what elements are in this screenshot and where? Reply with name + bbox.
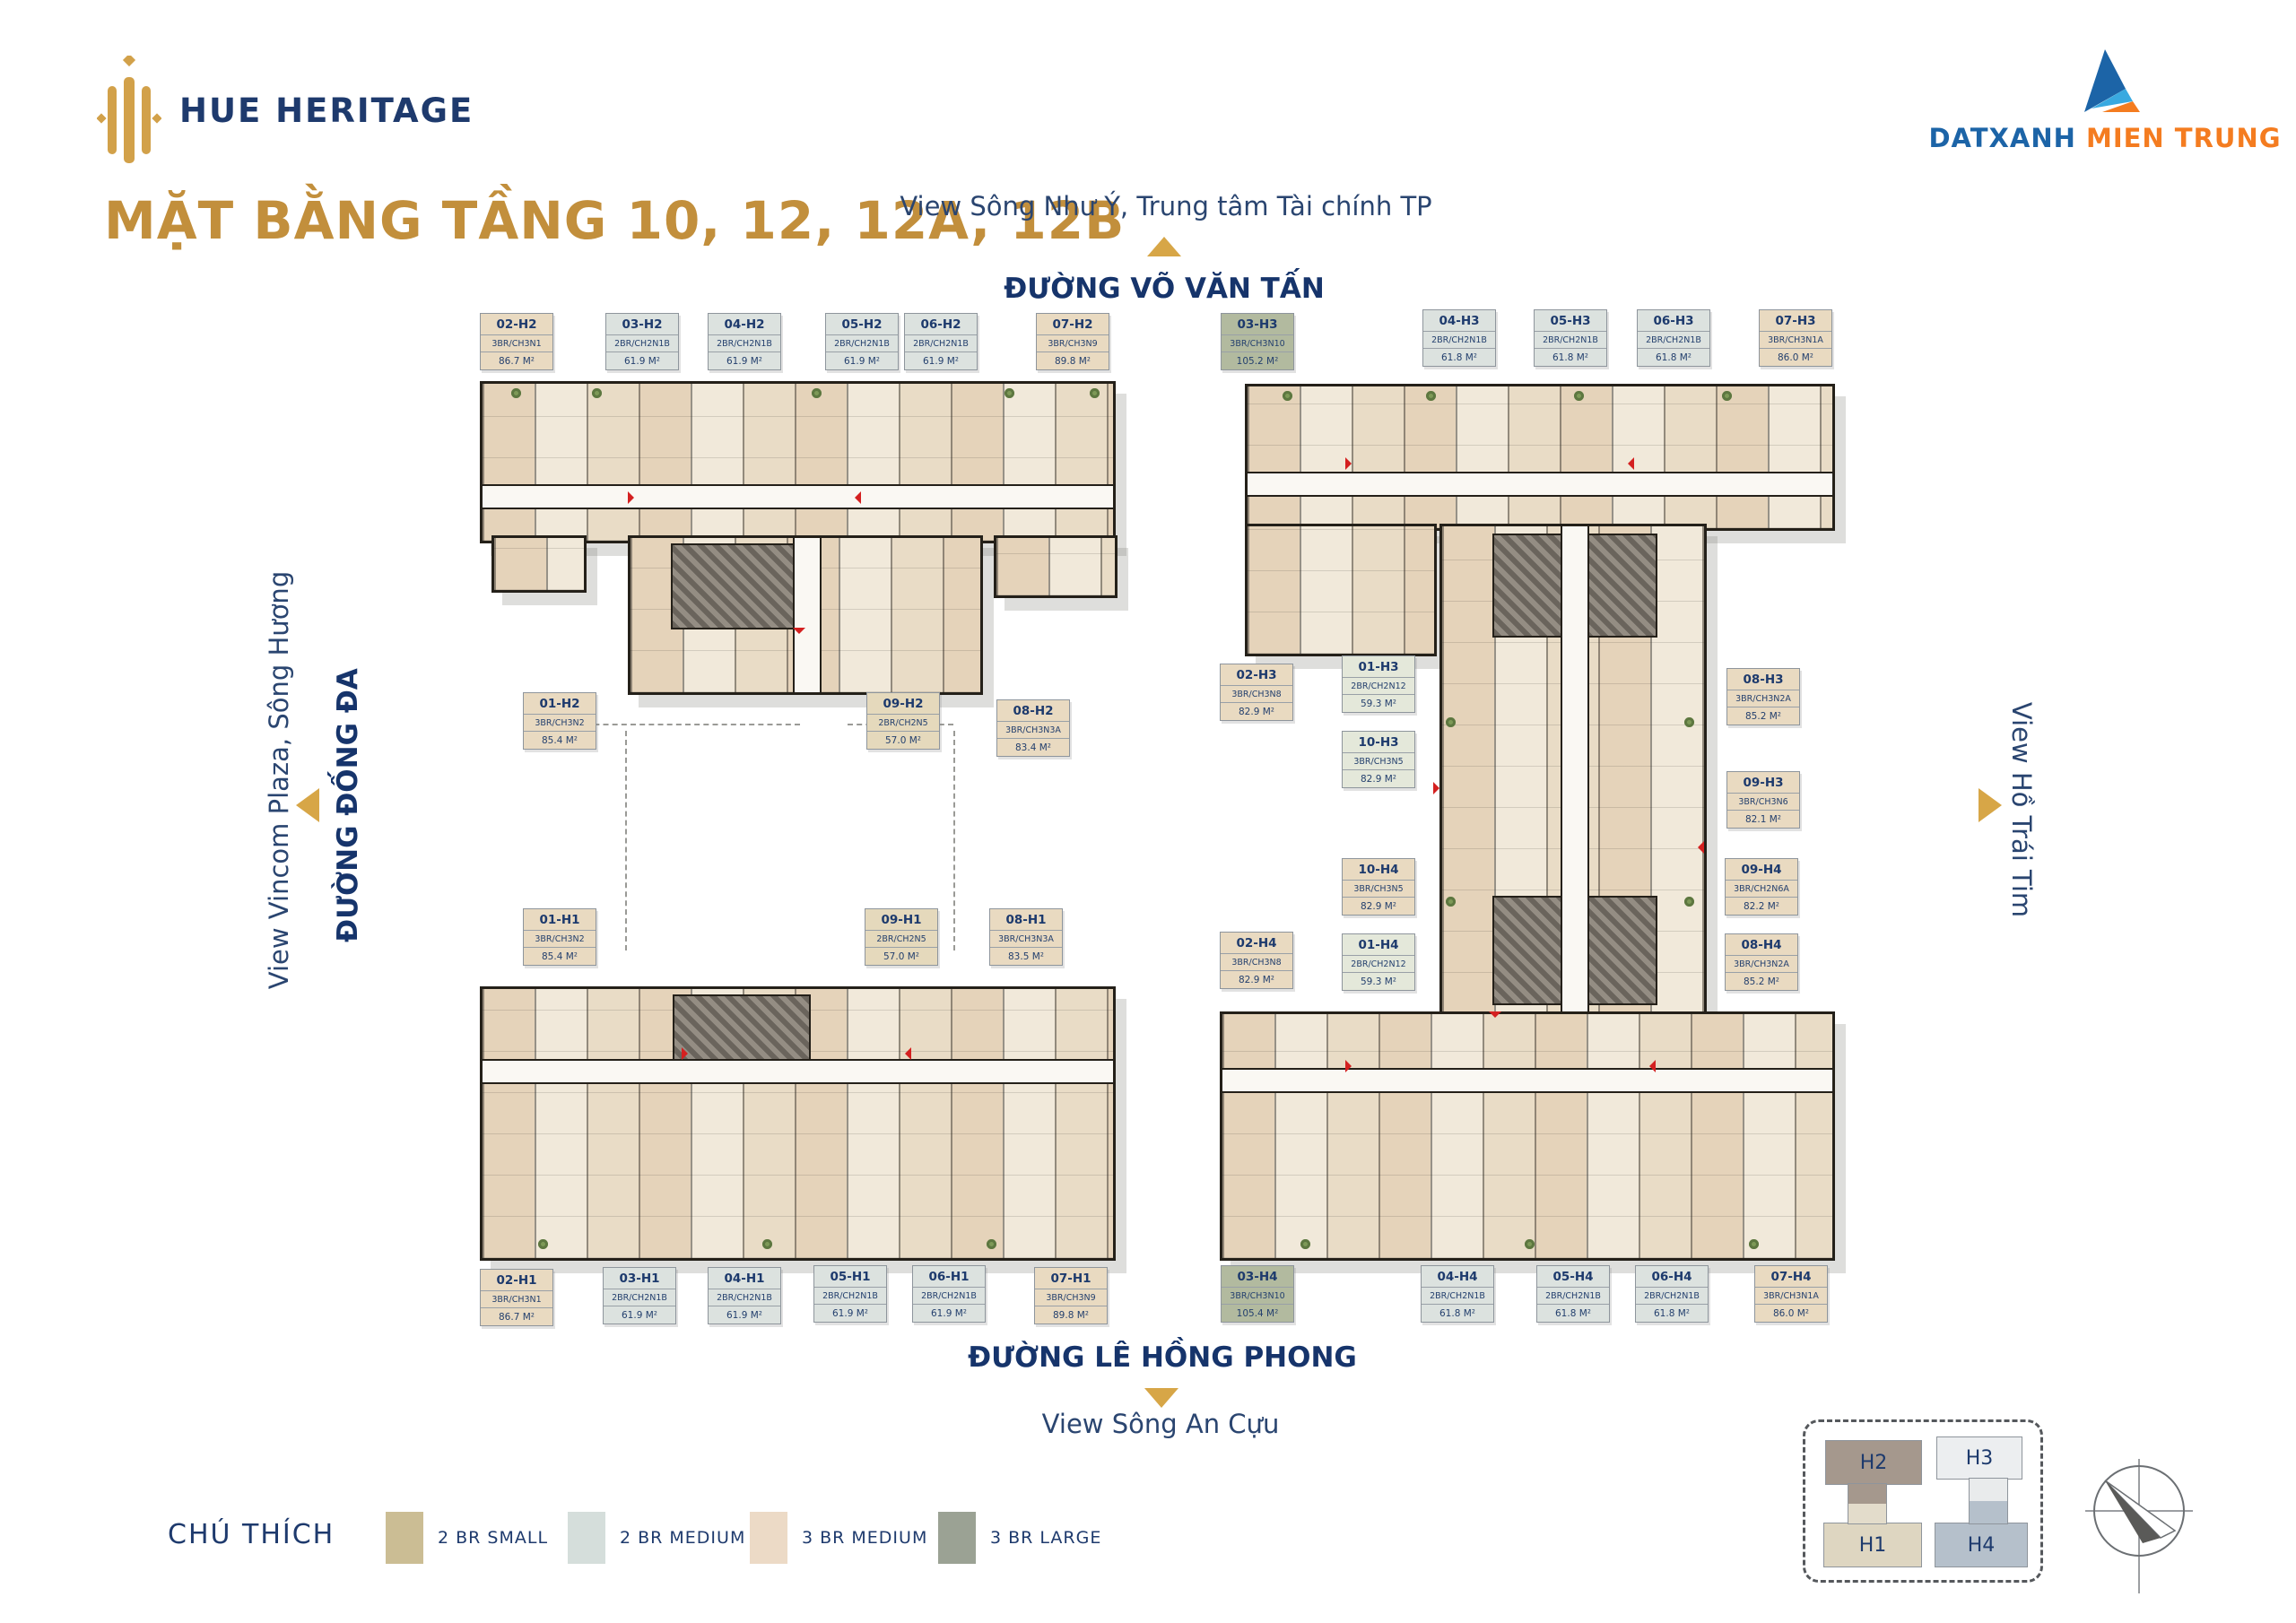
unit-type: 3BR/CH3N5 [1343,753,1414,770]
unit-type: 2BR/CH2N1B [913,1288,985,1305]
unit-area: 61.9 M² [905,352,977,369]
dashed-outline [625,731,627,950]
unit-area: 85.2 M² [1727,707,1799,725]
legend-swatch [938,1512,976,1564]
unit-code: 07-H1 [1035,1268,1107,1289]
stair-core [1492,896,1657,1005]
plant-icon [1283,391,1292,401]
legend-label: 3 BR MEDIUM [802,1528,927,1548]
unit-area: 83.4 M² [997,739,1069,756]
unit-label-06-H1: 06-H1 2BR/CH2N1B 61.9 M² [912,1265,986,1323]
unit-area: 57.0 M² [867,732,939,749]
arrow-left-icon [296,788,319,822]
stair-core [671,543,809,629]
unit-label-02-H4: 02-H4 3BR/CH3N8 82.9 M² [1220,932,1293,989]
unit-area: 61.9 M² [606,352,678,369]
plant-icon [762,1239,772,1249]
plant-icon [1446,717,1456,727]
legend-swatch [750,1512,787,1564]
legend-label: 2 BR SMALL [438,1528,548,1548]
plant-icon [1684,717,1694,727]
unit-type: 3BR/CH3N2A [1727,690,1799,707]
unit-type: 2BR/CH2N12 [1343,956,1414,973]
view-label-bottom: View Sông An Cựu [1042,1409,1280,1439]
dashed-outline [953,731,955,950]
building-h3-left-block [1245,524,1437,656]
unit-type: 3BR/CH3N1 [481,1291,552,1308]
unit-code: 05-H1 [814,1266,886,1288]
unit-area: 61.8 M² [1423,349,1495,366]
plant-icon [1004,388,1014,398]
unit-label-01-H3: 01-H3 2BR/CH2N12 59.3 M² [1342,655,1415,713]
unit-code: 08-H2 [997,700,1069,722]
unit-code: 02-H3 [1221,664,1292,686]
unit-code: 08-H3 [1727,669,1799,690]
unit-type: 3BR/CH3N3A [997,722,1069,739]
unit-type: 2BR/CH2N5 [867,715,939,732]
unit-label-10-H3: 10-H3 3BR/CH3N5 82.9 M² [1342,731,1415,788]
unit-type: 2BR/CH2N12 [1343,678,1414,695]
unit-area: 82.2 M² [1726,898,1797,915]
unit-type: 3BR/CH2N6A [1726,881,1797,898]
compass-icon [2085,1459,2193,1593]
unit-label-08-H4: 08-H4 3BR/CH3N2A 85.2 M² [1725,933,1798,991]
floorplan-poster: HUE HERITAGE MẶT BẰNG TẦNG 10, 12, 12A, … [0,0,2296,1623]
unit-code: 01-H1 [524,909,596,931]
keyplan-connector [1848,1483,1887,1524]
unit-type: 2BR/CH2N1B [709,335,780,352]
unit-label-06-H2: 06-H2 2BR/CH2N1B 61.9 M² [904,313,978,370]
unit-area: 57.0 M² [865,948,937,965]
legend-label: 2 BR MEDIUM [620,1528,745,1548]
street-label-bottom: ĐƯỜNG LÊ HỒNG PHONG [968,1341,1357,1374]
unit-area: 89.8 M² [1037,352,1109,369]
unit-label-02-H1: 02-H1 3BR/CH3N1 86.7 M² [480,1269,553,1326]
building-h2-main-wing [480,381,1116,543]
entrance-marker [1489,1011,1501,1024]
unit-label-08-H2: 08-H2 3BR/CH3N3A 83.4 M² [996,699,1070,757]
unit-type: 3BR/CH3N9 [1037,335,1109,352]
unit-type: 3BR/CH3N6 [1727,794,1799,811]
plant-icon [1722,391,1732,401]
unit-code: 09-H2 [867,693,939,715]
unit-code: 06-H3 [1638,310,1709,332]
unit-area: 61.9 M² [826,352,898,369]
unit-code: 09-H3 [1727,772,1799,794]
unit-type: 3BR/CH3N2 [524,931,596,948]
entrance-marker [1622,457,1634,470]
unit-code: 07-H4 [1755,1266,1827,1288]
developer-name-part1: DATXANH [1928,123,2075,153]
plant-icon [1684,897,1694,907]
unit-type: 3BR/CH3N8 [1221,686,1292,703]
unit-type: 2BR/CH2N5 [865,931,937,948]
unit-code: 03-H1 [604,1268,675,1289]
unit-type: 2BR/CH2N1B [1636,1288,1708,1305]
unit-code: 08-H1 [990,909,1062,931]
developer-logo: DATXANH MIEN TRUNG [1917,49,2293,153]
unit-label-07-H1: 07-H1 3BR/CH3N9 89.8 M² [1034,1267,1108,1324]
building-h2-core-wing [628,535,983,695]
plant-icon [1426,391,1436,401]
unit-type: 2BR/CH2N1B [1535,332,1606,349]
unit-code: 03-H4 [1222,1266,1293,1288]
plant-icon [1090,388,1100,398]
unit-label-06-H4: 06-H4 2BR/CH2N1B 61.8 M² [1635,1265,1709,1323]
entrance-marker [1643,1060,1656,1072]
unit-type: 3BR/CH3N9 [1035,1289,1107,1306]
unit-label-05-H1: 05-H1 2BR/CH2N1B 61.9 M² [813,1265,887,1323]
unit-label-04-H1: 04-H1 2BR/CH2N1B 61.9 M² [708,1267,781,1324]
unit-code: 06-H2 [905,314,977,335]
unit-label-03-H2: 03-H2 2BR/CH2N1B 61.9 M² [605,313,679,370]
unit-area: 61.8 M² [1537,1305,1609,1322]
unit-label-01-H1: 01-H1 3BR/CH3N2 85.4 M² [523,908,596,966]
unit-area: 83.5 M² [990,948,1062,965]
unit-area: 86.0 M² [1760,349,1831,366]
unit-label-03-H1: 03-H1 2BR/CH2N1B 61.9 M² [603,1267,676,1324]
brand-header: HUE HERITAGE [97,56,474,165]
unit-type: 3BR/CH3N10 [1222,335,1293,352]
plant-icon [1300,1239,1310,1249]
unit-area: 61.8 M² [1638,349,1709,366]
legend-title: CHÚ THÍCH [168,1519,335,1550]
unit-area: 61.8 M² [1636,1305,1708,1322]
keyplan-block-h1: H1 [1823,1523,1922,1567]
unit-label-04-H4: 04-H4 2BR/CH2N1B 61.8 M² [1421,1265,1494,1323]
unit-type: 3BR/CH3N1A [1760,332,1831,349]
unit-code: 01-H2 [524,693,596,715]
entrance-marker [899,1047,911,1060]
unit-code: 07-H3 [1760,310,1831,332]
unit-type: 2BR/CH2N1B [1537,1288,1609,1305]
unit-label-05-H2: 05-H2 2BR/CH2N1B 61.9 M² [825,313,899,370]
unit-type: 3BR/CH3N1 [481,335,552,352]
plant-icon [1446,897,1456,907]
unit-type: 2BR/CH2N1B [826,335,898,352]
unit-label-05-H3: 05-H3 2BR/CH2N1B 61.8 M² [1534,309,1607,367]
unit-area: 82.1 M² [1727,811,1799,828]
unit-label-09-H1: 09-H1 2BR/CH2N5 57.0 M² [865,908,938,966]
keyplan-block-h3: H3 [1936,1436,2022,1480]
unit-code: 01-H4 [1343,934,1414,956]
unit-area: 59.3 M² [1343,695,1414,712]
legend-swatch [568,1512,605,1564]
building-h3-main-wing [1245,384,1835,531]
unit-label-01-H2: 01-H2 3BR/CH3N2 85.4 M² [523,692,596,750]
unit-type: 3BR/CH3N5 [1343,881,1414,898]
legend-item-3br-large: 3 BR LARGE [938,1512,1101,1564]
unit-type: 2BR/CH2N1B [814,1288,886,1305]
unit-area: 85.4 M² [524,732,596,749]
entrance-marker [793,628,805,640]
unit-code: 09-H1 [865,909,937,931]
unit-area: 82.9 M² [1343,770,1414,787]
unit-code: 05-H4 [1537,1266,1609,1288]
unit-area: 89.8 M² [1035,1306,1107,1324]
developer-name: DATXANH MIEN TRUNG [1917,123,2293,153]
unit-label-03-H3: 03-H3 3BR/CH3N10 105.2 M² [1221,313,1294,370]
unit-area: 85.4 M² [524,948,596,965]
plant-icon [1749,1239,1759,1249]
unit-code: 05-H2 [826,314,898,335]
unit-area: 86.0 M² [1755,1305,1827,1322]
unit-area: 61.9 M² [814,1305,886,1322]
plant-icon [987,1239,996,1249]
entrance-marker [848,491,861,504]
unit-label-07-H4: 07-H4 3BR/CH3N1A 86.0 M² [1754,1265,1828,1323]
unit-code: 06-H4 [1636,1266,1708,1288]
unit-code: 08-H4 [1726,934,1797,956]
unit-label-04-H3: 04-H3 2BR/CH2N1B 61.8 M² [1422,309,1496,367]
building-h4-main-wing [1220,1011,1835,1261]
arrow-down-icon [1144,1388,1178,1408]
dashed-outline [576,724,800,725]
unit-area: 86.7 M² [481,352,552,369]
unit-label-01-H4: 01-H4 2BR/CH2N12 59.3 M² [1342,933,1415,991]
unit-type: 3BR/CH3N2 [524,715,596,732]
legend-item-2br-small: 2 BR SMALL [386,1512,548,1564]
unit-type: 2BR/CH2N1B [604,1289,675,1306]
entrance-marker [628,491,640,504]
unit-code: 04-H4 [1422,1266,1493,1288]
unit-code: 02-H2 [481,314,552,335]
unit-label-02-H3: 02-H3 3BR/CH3N8 82.9 M² [1220,664,1293,721]
unit-area: 61.9 M² [604,1306,675,1324]
unit-label-08-H3: 08-H3 3BR/CH3N2A 85.2 M² [1726,668,1800,725]
unit-area: 61.9 M² [709,352,780,369]
building-h2-right-stub [994,535,1118,598]
plant-icon [812,388,822,398]
legend-label: 3 BR LARGE [990,1528,1101,1548]
entrance-marker [1433,782,1446,794]
unit-type: 2BR/CH2N1B [905,335,977,352]
unit-type: 2BR/CH2N1B [606,335,678,352]
view-label-left: View Vincom Plaza, Sông Hương [264,571,294,989]
street-label-left: ĐƯỜNG ĐỐNG ĐA [332,668,364,942]
unit-label-08-H1: 08-H1 3BR/CH3N3A 83.5 M² [989,908,1063,966]
unit-code: 01-H3 [1343,656,1414,678]
building-h1-main-wing [480,986,1116,1261]
unit-label-04-H2: 04-H2 2BR/CH2N1B 61.9 M² [708,313,781,370]
unit-label-03-H4: 03-H4 3BR/CH3N10 105.4 M² [1221,1265,1294,1323]
keyplan: H2 H3 H1 H4 [1803,1419,2043,1583]
unit-type: 3BR/CH3N10 [1222,1288,1293,1305]
unit-area: 105.2 M² [1222,352,1293,369]
unit-area: 61.8 M² [1535,349,1606,366]
unit-area: 105.4 M² [1222,1305,1293,1322]
plant-icon [1574,391,1584,401]
view-label-right: View Hồ Trái Tim [2006,702,2037,917]
brand-name: HUE HERITAGE [179,91,474,130]
unit-label-07-H2: 07-H2 3BR/CH3N9 89.8 M² [1036,313,1109,370]
plant-icon [1525,1239,1535,1249]
unit-code: 04-H1 [709,1268,780,1289]
unit-label-07-H3: 07-H3 3BR/CH3N1A 86.0 M² [1759,309,1832,367]
unit-code: 04-H2 [709,314,780,335]
unit-code: 06-H1 [913,1266,985,1288]
arrow-up-icon [1147,237,1181,256]
unit-code: 10-H4 [1343,859,1414,881]
plant-icon [592,388,602,398]
street-label-top: ĐƯỜNG VÕ VĂN TẤN [1004,273,1325,305]
unit-code: 10-H3 [1343,732,1414,753]
legend-swatch [386,1512,423,1564]
unit-code: 07-H2 [1037,314,1109,335]
keyplan-block-h2: H2 [1825,1440,1922,1485]
entrance-marker [1692,841,1704,854]
unit-area: 86.7 M² [481,1308,552,1325]
unit-type: 3BR/CH3N2A [1726,956,1797,973]
unit-code: 03-H3 [1222,314,1293,335]
unit-label-09-H4: 09-H4 3BR/CH2N6A 82.2 M² [1725,858,1798,916]
unit-code: 03-H2 [606,314,678,335]
unit-type: 2BR/CH2N1B [1638,332,1709,349]
unit-label-05-H4: 05-H4 2BR/CH2N1B 61.8 M² [1536,1265,1610,1323]
building-h3-h4-connector-wing [1439,524,1707,1017]
unit-type: 2BR/CH2N1B [1423,332,1495,349]
keyplan-block-h4: H4 [1935,1523,2028,1567]
unit-area: 61.8 M² [1422,1305,1493,1322]
building-h2-left-stub [491,535,587,593]
unit-area: 82.9 M² [1221,971,1292,988]
datxanh-triangle-icon [2066,49,2144,114]
entrance-marker [682,1047,694,1060]
unit-code: 04-H3 [1423,310,1495,332]
unit-label-09-H2: 09-H2 2BR/CH2N5 57.0 M² [866,692,940,750]
legend-item-2br-medium: 2 BR MEDIUM [568,1512,745,1564]
unit-type: 3BR/CH3N1A [1755,1288,1827,1305]
hue-heritage-emblem-icon [97,56,161,165]
unit-type: 2BR/CH2N1B [1422,1288,1493,1305]
unit-code: 09-H4 [1726,859,1797,881]
unit-area: 82.9 M² [1343,898,1414,915]
unit-type: 2BR/CH2N1B [709,1289,780,1306]
unit-area: 59.3 M² [1343,973,1414,990]
developer-name-part2: MIEN TRUNG [2086,123,2282,153]
unit-area: 61.9 M² [913,1305,985,1322]
view-label-top: View Sông Như Ý, Trung tâm Tài chính TP [900,191,1431,221]
unit-area: 61.9 M² [709,1306,780,1324]
unit-label-10-H4: 10-H4 3BR/CH3N5 82.9 M² [1342,858,1415,916]
unit-label-06-H3: 06-H3 2BR/CH2N1B 61.8 M² [1637,309,1710,367]
unit-label-02-H2: 02-H2 3BR/CH3N1 86.7 M² [480,313,553,370]
unit-area: 85.2 M² [1726,973,1797,990]
unit-area: 82.9 M² [1221,703,1292,720]
unit-code: 02-H4 [1221,933,1292,954]
arrow-right-icon [1979,788,2002,822]
unit-type: 3BR/CH3N3A [990,931,1062,948]
entrance-marker [1345,457,1358,470]
legend-item-3br-medium: 3 BR MEDIUM [750,1512,927,1564]
keyplan-connector [1969,1478,2008,1524]
unit-type: 3BR/CH3N8 [1221,954,1292,971]
unit-code: 05-H3 [1535,310,1606,332]
plant-icon [511,388,521,398]
entrance-marker [1345,1060,1358,1072]
plant-icon [538,1239,548,1249]
unit-code: 02-H1 [481,1270,552,1291]
unit-label-09-H3: 09-H3 3BR/CH3N6 82.1 M² [1726,771,1800,829]
stair-core [1492,534,1657,638]
